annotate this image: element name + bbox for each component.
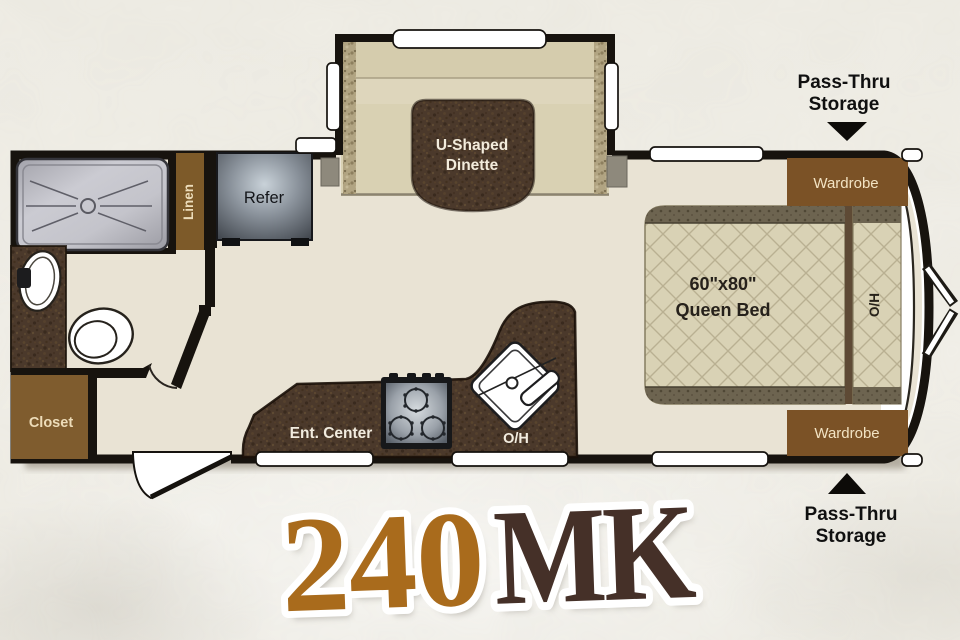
svg-text:MK: MK [491,475,697,633]
svg-text:Closet: Closet [29,415,73,431]
svg-text:O/H: O/H [503,431,529,447]
svg-text:240: 240 [278,482,486,640]
svg-text:Linen: Linen [181,184,196,220]
svg-text:Queen Bed: Queen Bed [675,300,770,320]
svg-text:Pass-Thru: Pass-Thru [798,72,891,93]
svg-text:Ent. Center: Ent. Center [290,425,373,442]
svg-text:O/H: O/H [867,293,882,317]
svg-text:Storage: Storage [816,526,887,547]
svg-text:Wardrobe: Wardrobe [814,425,879,442]
svg-text:60"x80": 60"x80" [689,274,756,294]
svg-text:Pass-Thru: Pass-Thru [805,504,898,525]
svg-text:Wardrobe: Wardrobe [813,175,878,192]
svg-text:U-Shaped: U-Shaped [436,137,508,154]
svg-text:Storage: Storage [809,94,880,115]
svg-text:Dinette: Dinette [446,157,499,174]
svg-text:Refer: Refer [244,189,285,207]
